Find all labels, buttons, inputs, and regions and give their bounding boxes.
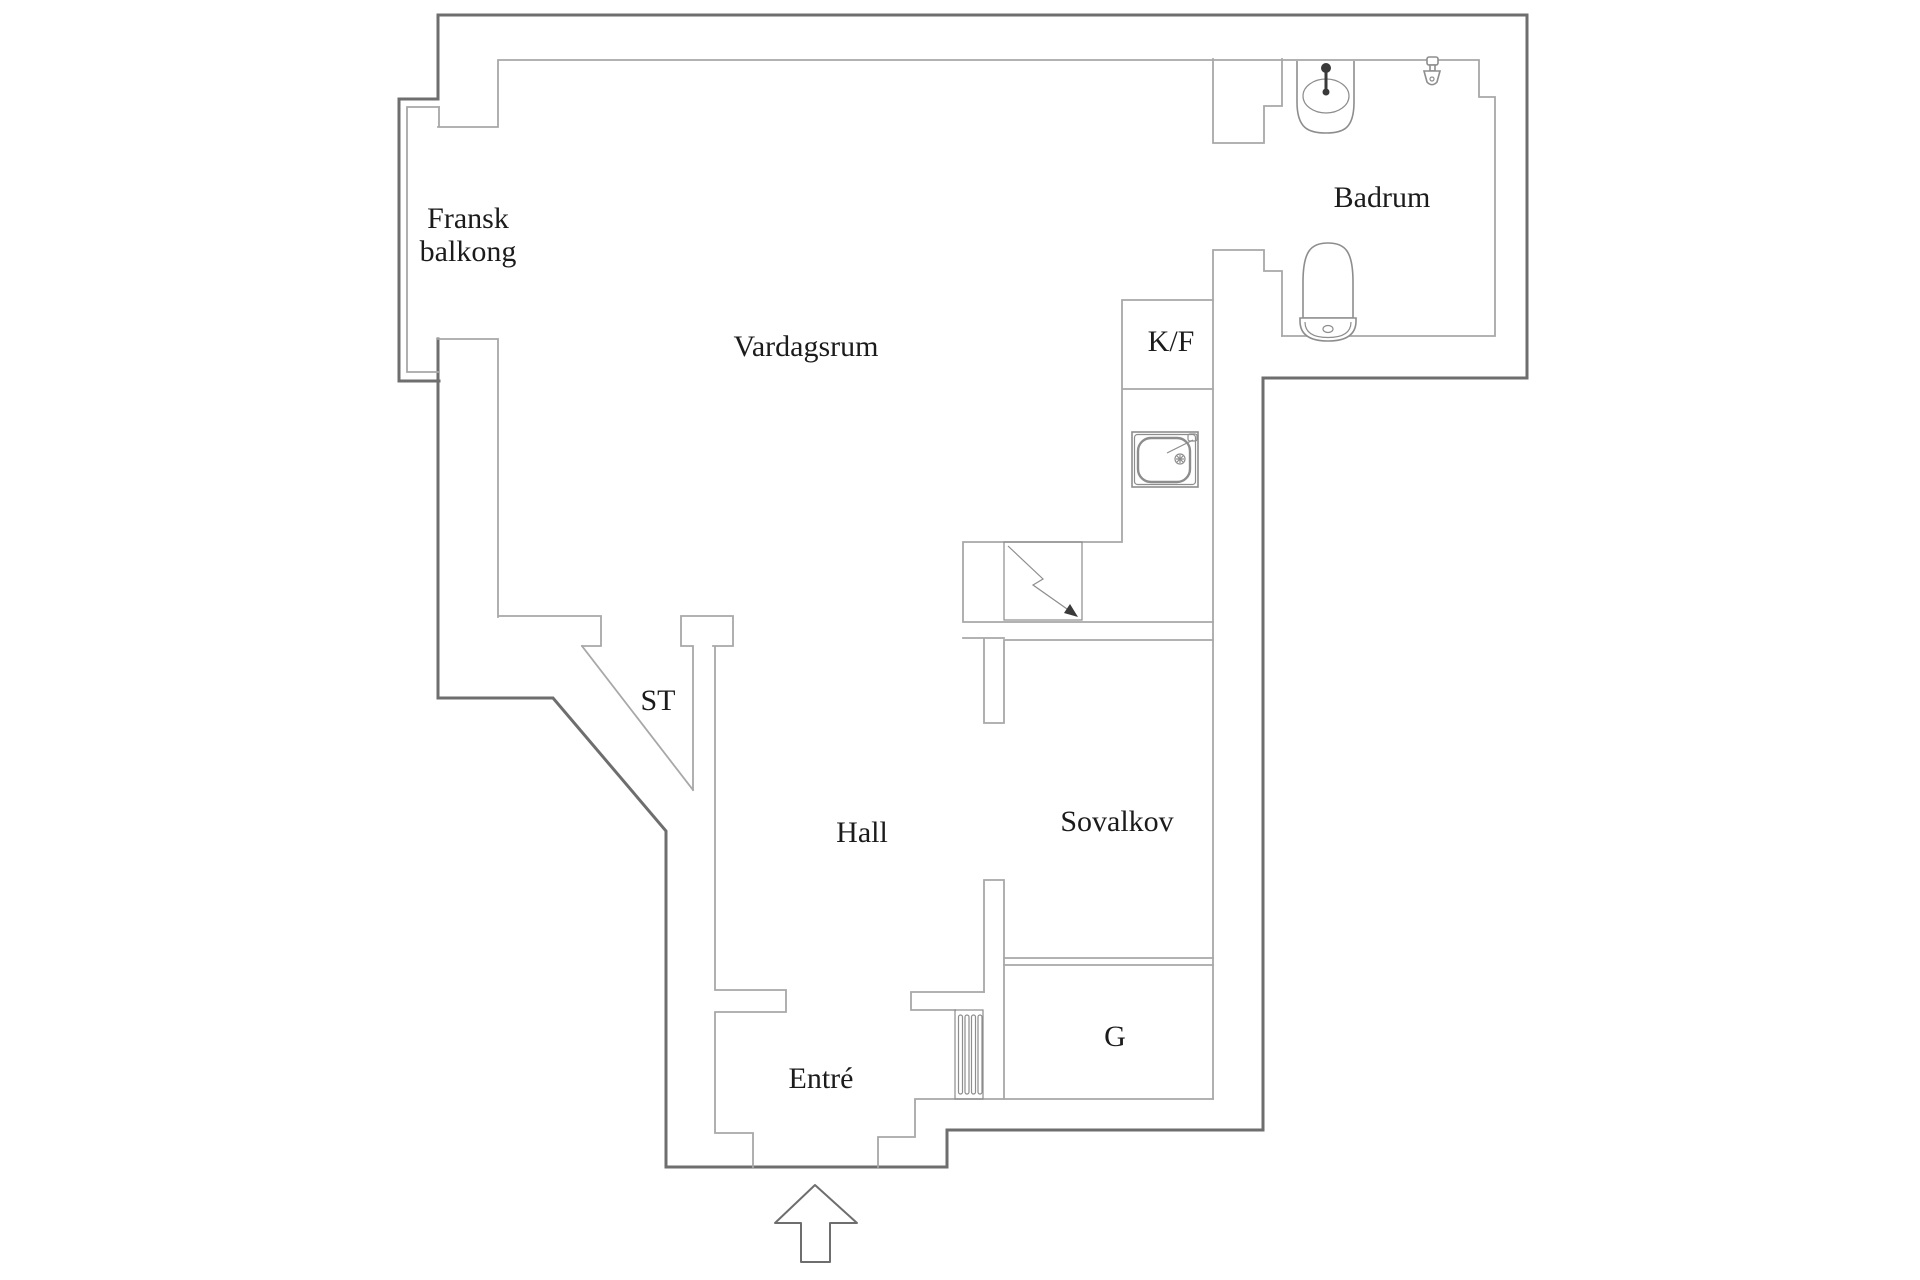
vardagsrum-left-wall <box>438 339 601 646</box>
sovalkov-west-wall <box>963 638 1213 1099</box>
bathroom-sink-faucet-base <box>1323 89 1330 96</box>
radiator-bar <box>959 1015 963 1094</box>
label-kf: K/F <box>1148 325 1195 358</box>
toilet-icon <box>1300 243 1356 341</box>
entrance-arrow <box>775 1185 857 1262</box>
radiator-icon <box>955 1010 983 1099</box>
closet-door-swing <box>582 646 693 790</box>
hall-west-wall <box>681 616 786 1167</box>
bathroom-sink-icon <box>1297 61 1354 133</box>
shower-bell <box>1424 71 1440 85</box>
entre-east-steps <box>878 992 1213 1167</box>
room-labels: Fransk balkong Vardagsrum Badrum K/F ST … <box>420 181 1431 1095</box>
inner-walls <box>407 59 1495 1167</box>
floorplan-canvas: Fransk balkong Vardagsrum Badrum K/F ST … <box>0 0 1920 1280</box>
label-entre: Entré <box>789 1062 854 1095</box>
lightning-bolt-arrowhead <box>1064 604 1078 617</box>
label-sovalkov: Sovalkov <box>1060 805 1173 838</box>
garderob-top-wall <box>1004 958 1213 965</box>
radiator-bar <box>978 1015 982 1094</box>
label-fransk-balkong-line1: Fransk <box>427 202 509 235</box>
radiator-bar <box>965 1015 969 1094</box>
label-fransk-balkong-line2: balkong <box>420 235 517 268</box>
toilet-tank <box>1303 243 1353 318</box>
shower-neck <box>1430 65 1435 71</box>
shower-icon <box>1424 57 1440 85</box>
entrance-arrow-icon <box>775 1185 857 1262</box>
electrical-panel-icon <box>1004 542 1082 620</box>
label-garderob: G <box>1104 1020 1126 1053</box>
label-st: ST <box>640 684 675 717</box>
kitchen-sink-drain-cross <box>1176 455 1184 463</box>
label-hall: Hall <box>836 816 888 849</box>
lightning-bolt <box>1008 546 1077 616</box>
label-vardagsrum: Vardagsrum <box>734 330 879 363</box>
kitchen-sink-icon <box>1132 432 1198 487</box>
shower-head-top <box>1427 57 1438 65</box>
badrum-door-jambs <box>1213 59 1282 1099</box>
kitchen-sink-basin <box>1138 438 1190 482</box>
floorplan-svg: Fransk balkong Vardagsrum Badrum K/F ST … <box>0 0 1920 1280</box>
label-badrum: Badrum <box>1334 181 1431 214</box>
radiator-bar <box>972 1015 976 1094</box>
